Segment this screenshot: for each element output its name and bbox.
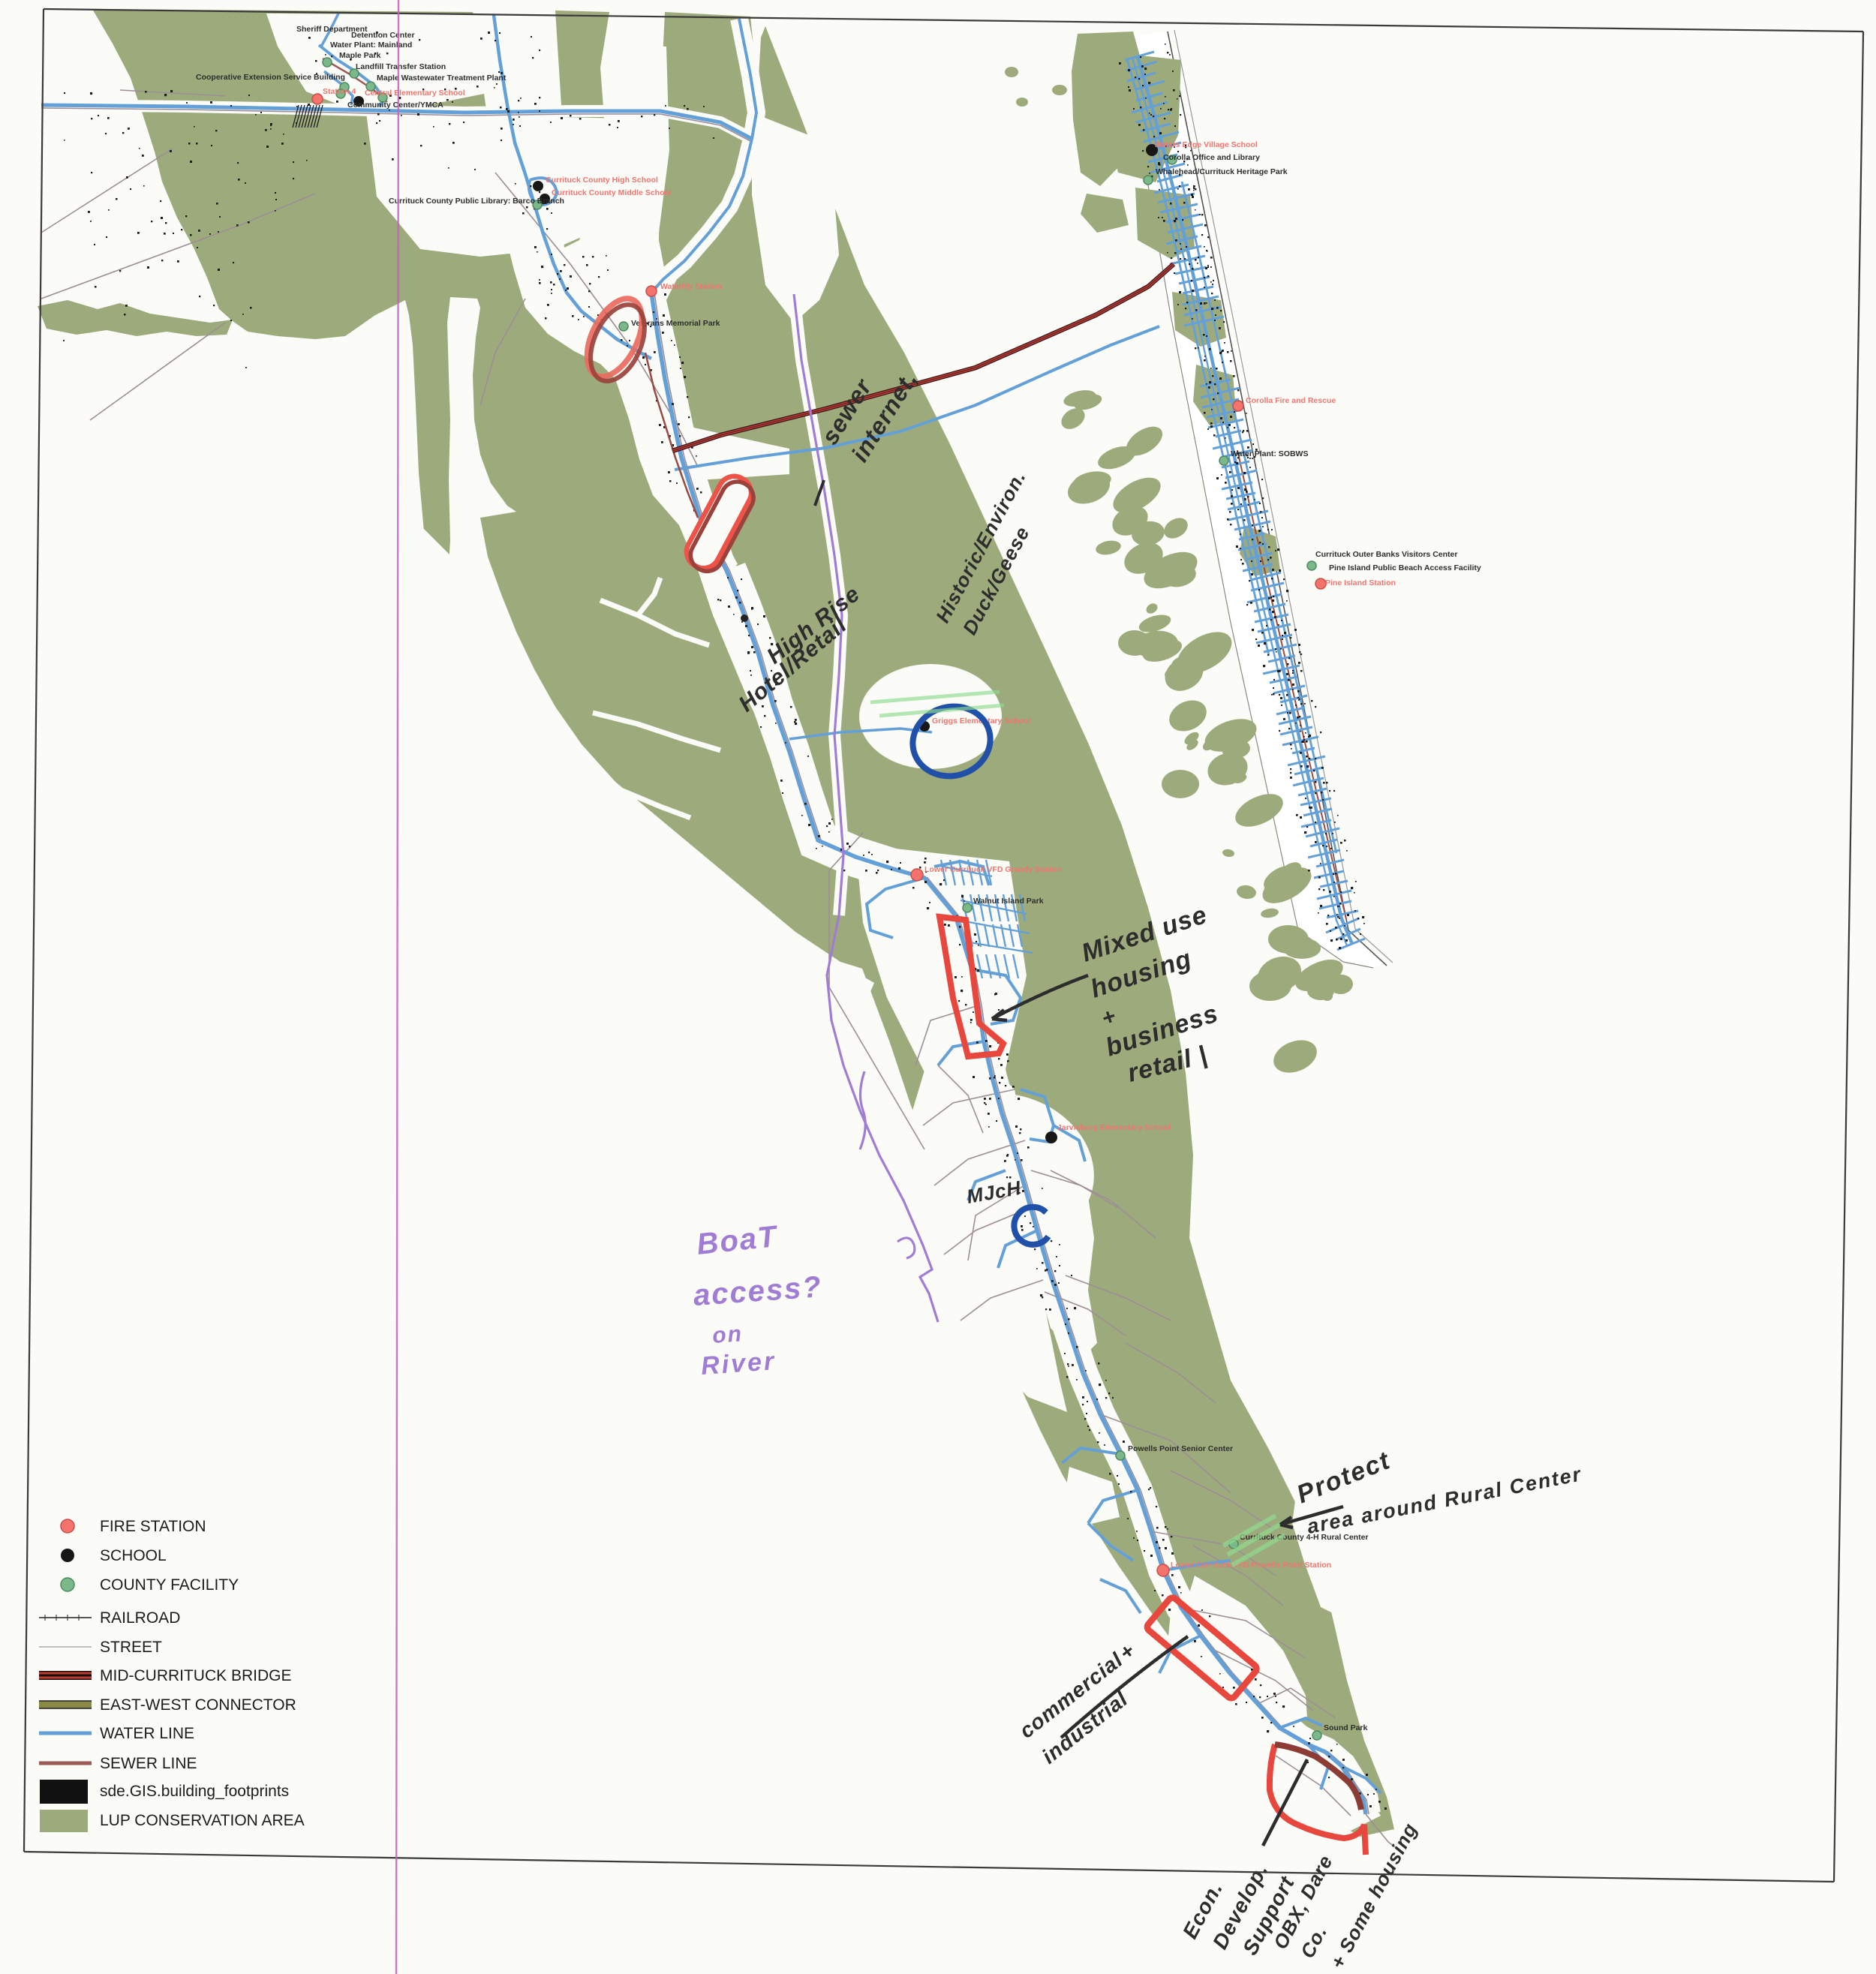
svg-text:COUNTY FACILITY: COUNTY FACILITY <box>100 1576 239 1594</box>
svg-text:Detention Center: Detention Center <box>351 31 415 40</box>
svg-text:Currituck County Middle School: Currituck County Middle School <box>552 188 672 197</box>
svg-text:Waterlily Station: Waterlily Station <box>660 282 722 291</box>
svg-text:STREET: STREET <box>100 1639 162 1656</box>
svg-text:SCHOOL: SCHOOL <box>100 1547 167 1564</box>
svg-text:Lower Currituck VFD Grandy Sta: Lower Currituck VFD Grandy Station <box>924 865 1062 874</box>
svg-text:Waters Edge Village School: Waters Edge Village School <box>1154 140 1258 149</box>
svg-text:Pine Island Station: Pine Island Station <box>1325 578 1396 587</box>
svg-text:Central Elementary School: Central Elementary School <box>365 89 465 98</box>
svg-text:RAILROAD: RAILROAD <box>100 1609 180 1627</box>
svg-text:Water Plant: SOBWS: Water Plant: SOBWS <box>1231 449 1308 458</box>
svg-text:Maple Park: Maple Park <box>339 51 381 60</box>
svg-text:Currituck County Public Librar: Currituck County Public Library: Barco B… <box>389 197 564 206</box>
svg-text:Pine Island Public Beach Acces: Pine Island Public Beach Access Facility <box>1329 563 1481 572</box>
svg-text:FIRE STATION: FIRE STATION <box>100 1518 206 1535</box>
svg-text:Water Plant: Mainland: Water Plant: Mainland <box>330 41 412 50</box>
svg-text:Walnut Island Park: Walnut Island Park <box>973 897 1044 906</box>
svg-text:SEWER LINE: SEWER LINE <box>100 1755 197 1772</box>
svg-text:Sound Park: Sound Park <box>1324 1723 1368 1732</box>
svg-text:on: on <box>711 1321 744 1348</box>
svg-text:Powells Point Senior Center: Powells Point Senior Center <box>1128 1444 1233 1453</box>
svg-text:Jarvisburg Elementary School: Jarvisburg Elementary School <box>1057 1123 1171 1132</box>
svg-text:Community Center/YMCA: Community Center/YMCA <box>347 101 443 110</box>
svg-text:WATER LINE: WATER LINE <box>100 1725 194 1742</box>
svg-text:Corolla Fire and Rescue: Corolla Fire and Rescue <box>1246 396 1336 405</box>
svg-text:LUP CONSERVATION AREA: LUP CONSERVATION AREA <box>100 1812 305 1829</box>
svg-text:EAST-WEST CONNECTOR: EAST-WEST CONNECTOR <box>100 1696 296 1714</box>
svg-text:Currituck County High School: Currituck County High School <box>546 176 658 185</box>
svg-text:MID-CURRITUCK BRIDGE: MID-CURRITUCK BRIDGE <box>100 1667 292 1684</box>
svg-text:Cooperative Extension Service: Cooperative Extension Service Building <box>196 73 345 82</box>
svg-text:Maple Wastewater Treatment Pla: Maple Wastewater Treatment Plant <box>377 74 507 83</box>
svg-text:Currituck Outer Banks Visitors: Currituck Outer Banks Visitors Center <box>1315 550 1457 559</box>
svg-text:Lower Currituck VFD Powells Po: Lower Currituck VFD Powells Point Statio… <box>1171 1561 1331 1570</box>
svg-text:Landfill Transfer Station: Landfill Transfer Station <box>356 62 446 71</box>
svg-text:River: River <box>700 1347 777 1381</box>
svg-text:sde.GIS.building_footprints: sde.GIS.building_footprints <box>100 1783 289 1800</box>
svg-text:Whalehead/Currituck Heritage P: Whalehead/Currituck Heritage Park <box>1156 167 1288 176</box>
svg-text:Station 4: Station 4 <box>323 87 356 96</box>
svg-text:Corolla Office and Library: Corolla Office and Library <box>1163 153 1260 162</box>
